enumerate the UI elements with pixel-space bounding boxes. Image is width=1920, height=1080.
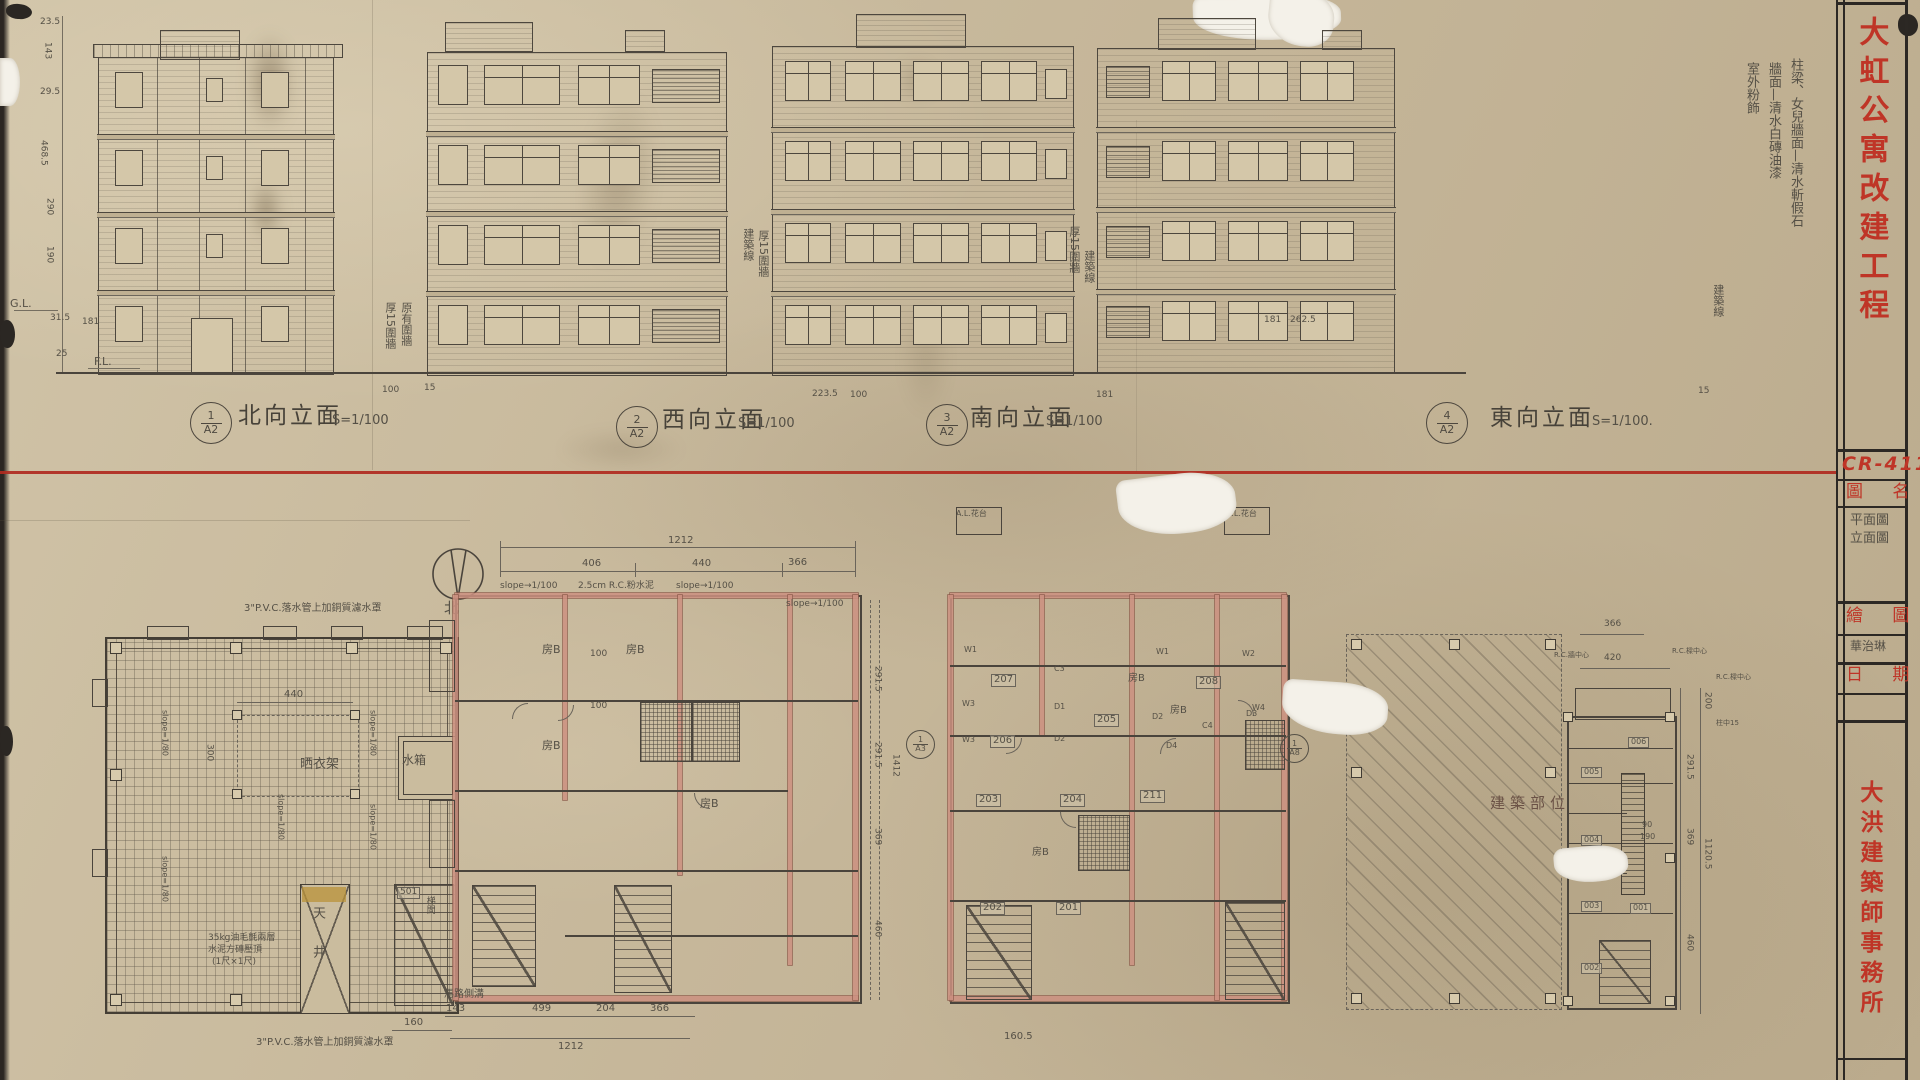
- ref-sheet: A2: [1440, 424, 1455, 436]
- column: [110, 642, 122, 654]
- level-label-fl: F.L.: [94, 356, 112, 368]
- terrace-dash-line: [870, 600, 871, 1000]
- window: [1045, 231, 1067, 261]
- roof-bulkhead: [160, 30, 240, 60]
- stair: [1599, 940, 1651, 1004]
- balcony-rail: [1106, 306, 1150, 338]
- rc-note: 2.5cm R.C.粉水泥: [578, 582, 654, 592]
- stair-label: 梯間: [424, 896, 434, 914]
- roof-bulkhead: [1158, 18, 1256, 50]
- column: [350, 789, 360, 799]
- dim-line: [392, 1030, 452, 1031]
- fold-crease: [0, 520, 470, 521]
- elevation-wall: [98, 57, 334, 375]
- balcony-rail: [1106, 146, 1150, 178]
- dim-label: 31.5: [50, 314, 70, 324]
- floor-slab: [97, 212, 335, 218]
- terrace-dash-line: [879, 600, 880, 1000]
- window: [1228, 221, 1288, 261]
- stair: [472, 885, 536, 987]
- partition: [1567, 748, 1673, 749]
- dim-label: 1412: [890, 754, 900, 777]
- dim-line: [1680, 688, 1681, 1010]
- window: [981, 141, 1037, 181]
- titleblock-rule: [1836, 506, 1908, 508]
- slope-note: slope→1/100: [676, 582, 733, 592]
- window: [913, 61, 969, 101]
- window: [845, 305, 901, 345]
- door-mark: D2: [1152, 713, 1163, 722]
- site-area-label: 建築部位: [1490, 795, 1570, 811]
- ref-sheet: A8: [1289, 749, 1300, 757]
- elevation-title: 北向立面: [238, 404, 342, 429]
- partition: [455, 790, 788, 792]
- column: [1665, 996, 1675, 1006]
- slope-note: slope→1/100: [786, 600, 843, 610]
- roof-box: [1322, 30, 1362, 50]
- window: [1045, 69, 1067, 99]
- window: [845, 61, 901, 101]
- floor-slab: [1096, 207, 1396, 213]
- column: [1351, 767, 1362, 778]
- window: [785, 223, 831, 263]
- column: [232, 789, 242, 799]
- dim-label: 181: [1264, 316, 1281, 326]
- bathroom: [1078, 815, 1130, 871]
- elevation-ref-bubble: 1 A2: [190, 402, 232, 444]
- blueprint-sheet: 23.5 143 29.5 468.5 290 190 31.5 25 G.L.…: [0, 0, 1920, 1080]
- elevation-wall: [772, 46, 1074, 376]
- column: [1351, 993, 1362, 1004]
- dim-label: 25: [56, 350, 67, 360]
- drying-rack-label: 晒衣架: [300, 758, 339, 772]
- dim-tick: [635, 563, 636, 577]
- window: [1162, 61, 1216, 101]
- room-label: 房B: [626, 644, 645, 656]
- floor-slab: [771, 127, 1075, 133]
- room-label: 房B: [542, 644, 561, 656]
- cap-note: (1尺×1尺): [212, 958, 256, 968]
- gl-line: [14, 310, 58, 311]
- roof-tab: [92, 679, 108, 707]
- elevation-scale: S=1/100: [738, 417, 795, 431]
- drawing-number: CR-411: [1842, 454, 1920, 475]
- elevation-east: [1096, 16, 1396, 374]
- window: [578, 145, 640, 185]
- floor-slab: [426, 211, 728, 217]
- wall-pink: [853, 595, 858, 1000]
- window: [578, 65, 640, 105]
- room-number: 204: [1060, 794, 1085, 807]
- water-tank-label: 水箱: [402, 754, 426, 767]
- pvc-note-top: 3"P.V.C.落水管上加銅質濾水罩: [244, 604, 382, 615]
- wall-pink: [455, 996, 858, 1001]
- slope-label: slope=1/80: [160, 710, 169, 756]
- window: [438, 145, 468, 185]
- window: [1045, 149, 1067, 179]
- dim-label: 366: [788, 558, 807, 569]
- pvc-note-bottom: 3"P.V.C.落水管上加銅質濾水罩: [256, 1038, 394, 1049]
- finish-note-3: 室外粉飾: [1744, 62, 1758, 114]
- fl-line: [88, 368, 140, 369]
- dim-label: 369: [1684, 828, 1694, 845]
- dim-label: 420: [1604, 654, 1621, 664]
- slope-label: slope=1/80: [368, 710, 377, 756]
- ref-number: 2: [627, 414, 648, 427]
- finish-note-2: 牆面—清水白磚油漆: [1766, 62, 1780, 179]
- window: [438, 65, 468, 105]
- window: [1045, 313, 1067, 343]
- window: [438, 225, 468, 265]
- window: [785, 305, 831, 345]
- note-wall: 厚15圍牆: [1068, 226, 1080, 273]
- room-label: 房B: [1170, 706, 1187, 717]
- dim-line: [445, 1016, 695, 1017]
- window-mark: W3: [962, 736, 975, 745]
- ref-sheet: A3: [915, 745, 926, 753]
- titleblock-rule: [1836, 2, 1908, 5]
- dim-tick: [855, 541, 856, 577]
- dim-label: 181: [1096, 391, 1113, 401]
- planter-label: A.L.花台: [956, 510, 987, 519]
- dim-label: 468.5: [38, 140, 48, 166]
- dim-label: 160: [404, 1018, 423, 1029]
- dim-line: [1580, 668, 1670, 669]
- entrance-door: [191, 318, 233, 374]
- gutter-label: 馬路側溝: [444, 990, 484, 1001]
- partition: [565, 935, 858, 937]
- dim-label: 15: [424, 384, 435, 394]
- elevation-west: [425, 18, 727, 376]
- titleblock-rule: [1836, 693, 1908, 695]
- titleblock-rule: [1836, 449, 1908, 452]
- dim-label: 100: [590, 650, 607, 660]
- dim-label: 181: [82, 318, 99, 328]
- fold-crease: [372, 0, 373, 470]
- dim-label: 143: [42, 42, 52, 59]
- window: [115, 228, 143, 264]
- note-building-line: 建築線: [742, 228, 754, 261]
- column: [346, 642, 358, 654]
- elevation-north: [95, 28, 340, 378]
- col-center-note: 柱中15: [1716, 720, 1739, 728]
- roof-bulkhead: [856, 14, 966, 48]
- dim-line: [1580, 634, 1644, 635]
- room-number: 004: [1581, 835, 1602, 846]
- column: [1545, 639, 1556, 650]
- room-number: 203: [976, 794, 1001, 807]
- titleblock-border: [1843, 0, 1845, 1080]
- dim-label: 160.5: [1004, 1032, 1033, 1043]
- ref-number: 1: [201, 410, 222, 423]
- column: [230, 994, 242, 1006]
- room-number: 211: [1140, 790, 1165, 803]
- window: [913, 223, 969, 263]
- rc-beam-note: R.C.樑中心: [1672, 648, 1707, 656]
- elevation-ref-bubble: 4 A2: [1426, 402, 1468, 444]
- slope-label: slope=1/80: [276, 794, 285, 840]
- window: [484, 145, 560, 185]
- elevation-scale: S=1/100: [332, 414, 389, 428]
- titleblock-rule: [1836, 1058, 1908, 1060]
- window: [785, 61, 831, 101]
- roof-vent: [263, 626, 297, 640]
- dim-label: 291.5: [872, 666, 882, 692]
- bathroom: [692, 702, 740, 762]
- slope-label: slope=1/80: [368, 804, 377, 850]
- window-mark: W2: [1242, 650, 1255, 659]
- partition: [950, 665, 1286, 667]
- elevation-south: [771, 12, 1073, 374]
- dim-label: 300: [204, 744, 214, 761]
- column: [1449, 993, 1460, 1004]
- finish-note-1: 柱梁、女兒牆面—清水斬假石: [1788, 58, 1802, 227]
- stain-yellow: [302, 887, 346, 902]
- roof-tab: [92, 849, 108, 877]
- room-number: 002: [1581, 963, 1602, 974]
- note-wall: 厚15圍牆: [384, 302, 396, 349]
- dim-label: 366: [650, 1004, 669, 1015]
- closet-mark: C3: [1054, 665, 1065, 674]
- wall-pink: [788, 595, 792, 965]
- titleblock-rule: [1836, 634, 1908, 636]
- wall-pink: [1215, 595, 1219, 1000]
- dim-label: 223.5: [812, 390, 838, 400]
- ref-sheet: A2: [204, 424, 219, 436]
- partition: [1567, 813, 1627, 814]
- stair-number: 501: [397, 887, 420, 899]
- room-number: 001: [1630, 903, 1651, 914]
- level-label-gl: G.L.: [10, 298, 32, 310]
- roof-bulkhead: [445, 22, 533, 52]
- section-ref-bubble: 1 A8: [1280, 734, 1309, 763]
- dim-label: 406: [582, 559, 601, 570]
- floor-slab: [97, 134, 335, 140]
- column: [110, 769, 122, 781]
- project-title: 大虹公寓改建工程: [1854, 16, 1886, 328]
- window: [981, 223, 1037, 263]
- window: [438, 305, 468, 345]
- dim-label: 369: [872, 828, 882, 845]
- titleblock-border: [1836, 0, 1838, 1080]
- balcony-rail: [1106, 66, 1150, 98]
- room-label: 房B: [542, 740, 561, 752]
- partition: [455, 870, 858, 872]
- window: [1300, 61, 1354, 101]
- window: [1228, 141, 1288, 181]
- ref-sheet: A2: [630, 428, 645, 440]
- wall-pink: [948, 595, 953, 1000]
- field-drawing-name: 圖 名: [1846, 483, 1920, 501]
- partition: [1567, 913, 1673, 914]
- floor-slab: [1096, 127, 1396, 133]
- window: [1228, 61, 1288, 101]
- light-well-label: 天井: [310, 906, 324, 984]
- dim-label: 1212: [668, 536, 693, 547]
- stair: [966, 905, 1032, 1000]
- elevation-wall: [427, 52, 727, 376]
- window: [785, 141, 831, 181]
- dim-label: 290: [44, 198, 54, 215]
- window: [981, 61, 1037, 101]
- window: [261, 150, 289, 186]
- field-date: 日 期: [1846, 666, 1920, 684]
- paper-tear: [0, 58, 20, 106]
- column: [1665, 712, 1675, 722]
- floor-slab: [771, 291, 1075, 297]
- dim-label: 15: [1698, 387, 1709, 397]
- window: [484, 305, 560, 345]
- column: [232, 710, 242, 720]
- slope-note: slope→1/100: [500, 582, 557, 592]
- slope-label: slope=1/80: [160, 856, 169, 902]
- room-number: 201: [1056, 902, 1081, 915]
- bathroom: [1245, 720, 1285, 770]
- note-wall: 原有圍牆: [400, 302, 412, 346]
- elevation-wall: [1097, 48, 1395, 374]
- window: [115, 306, 143, 342]
- dim-label: 204: [596, 1004, 615, 1015]
- wall-pink: [455, 593, 858, 598]
- stair: [1225, 902, 1285, 1000]
- stair-window: [206, 78, 223, 102]
- room-number: 206: [990, 735, 1015, 748]
- drawing-name-1: 平面圖: [1850, 514, 1889, 528]
- dim-label: 1212: [558, 1042, 583, 1053]
- floor-slab: [771, 209, 1075, 215]
- window: [981, 305, 1037, 345]
- dim-label: 291.5: [1684, 754, 1694, 780]
- ref-number: 3: [937, 412, 958, 425]
- dim-label: 100: [850, 391, 867, 401]
- window: [115, 72, 143, 108]
- dim-label: 100: [590, 702, 607, 712]
- room-number: 006: [1628, 737, 1649, 748]
- balcony-rail: [1106, 226, 1150, 258]
- window: [261, 228, 289, 264]
- edge-mark: [0, 320, 15, 348]
- window: [578, 305, 640, 345]
- window-mark: W1: [964, 646, 977, 655]
- floor-slab: [426, 291, 728, 297]
- water-tank-room: [398, 736, 458, 800]
- window: [578, 225, 640, 265]
- cap-note: 水泥方磚壓頂: [208, 946, 262, 956]
- column: [230, 642, 242, 654]
- window: [115, 150, 143, 186]
- room-number: 005: [1581, 767, 1602, 778]
- room-number: 202: [980, 902, 1005, 915]
- ground-line: [56, 372, 1466, 374]
- column: [1665, 853, 1675, 863]
- dim-label: 29.5: [40, 88, 60, 98]
- window: [913, 305, 969, 345]
- stair: [614, 885, 672, 993]
- ref-number: 4: [1437, 410, 1458, 423]
- dim-line: [500, 547, 855, 548]
- floor-slab: [1096, 289, 1396, 295]
- dim-label: 440: [284, 690, 303, 701]
- elevation-ref-bubble: 2 A2: [616, 406, 658, 448]
- room-number: 208: [1196, 676, 1221, 689]
- elevation-title: 東向立面: [1490, 406, 1594, 431]
- floor-slab: [97, 290, 335, 296]
- room-number: 003: [1581, 901, 1602, 912]
- dim-label: 190: [44, 246, 54, 263]
- stair-window: [206, 234, 223, 258]
- balcony-rail: [652, 309, 720, 343]
- dim-label: 440: [692, 559, 711, 570]
- rc-beam-note: R.C.樑中心: [1716, 674, 1751, 682]
- elevation-scale: S=1/100: [1046, 415, 1103, 429]
- room-label: 房B: [1128, 674, 1145, 685]
- elevation-scale: S=1/100.: [1592, 415, 1653, 429]
- partition: [950, 810, 1286, 812]
- window: [1162, 141, 1216, 181]
- dim-label: 1120.5: [1702, 838, 1712, 870]
- elevation-ref-bubble: 3 A2: [926, 404, 968, 446]
- titleblock-rule: [1836, 479, 1908, 481]
- dim-tick: [500, 541, 501, 577]
- window: [845, 141, 901, 181]
- floor-slab: [426, 131, 728, 137]
- drafter-name: 華治琳: [1850, 640, 1886, 653]
- light-well-shaft: [300, 884, 350, 1014]
- column: [1545, 993, 1556, 1004]
- sheet-left-edge: [0, 0, 10, 1080]
- note-building-line: 建築線: [1712, 284, 1724, 317]
- dim-label: 460: [1684, 934, 1694, 951]
- door-mark: D1: [1054, 703, 1065, 712]
- bathroom: [640, 702, 692, 762]
- window: [1162, 301, 1216, 341]
- window: [261, 306, 289, 342]
- site-hatch-area: [1346, 634, 1562, 1010]
- window: [261, 72, 289, 108]
- room-number: 207: [991, 674, 1016, 687]
- cap-note: 35kg油毛氈兩層: [208, 934, 275, 944]
- note-building-line: 建築線: [1083, 250, 1095, 283]
- roof-vent: [147, 626, 189, 640]
- drawing-name-2: 立面圖: [1850, 532, 1889, 546]
- dim-label: 460: [872, 920, 882, 937]
- room-label: 房B: [700, 798, 719, 810]
- edge-mark: [0, 726, 13, 756]
- titleblock-rule: [1836, 601, 1908, 604]
- window: [913, 141, 969, 181]
- room-label: 房B: [1032, 848, 1049, 859]
- window: [484, 225, 560, 265]
- roof-box: [625, 30, 665, 52]
- balcony: [429, 620, 455, 692]
- dim-label: 200: [1702, 692, 1712, 709]
- titleblock-rule: [1836, 720, 1908, 723]
- note-wall: 厚15圍牆: [757, 230, 769, 277]
- dim-label: 100: [382, 386, 399, 396]
- dim-label: 23.5: [40, 18, 60, 28]
- floor-plan-3: [948, 505, 1288, 1040]
- closet-mark: C4: [1202, 722, 1213, 731]
- red-divider-line: [0, 471, 1838, 474]
- dim-line: [237, 702, 353, 703]
- window: [1300, 221, 1354, 261]
- dim-label: 143: [446, 1004, 465, 1015]
- column: [1545, 767, 1556, 778]
- wall-pink: [950, 593, 1286, 598]
- wall-pink: [563, 595, 567, 800]
- column: [1449, 639, 1460, 650]
- edge-mark: [1898, 14, 1918, 36]
